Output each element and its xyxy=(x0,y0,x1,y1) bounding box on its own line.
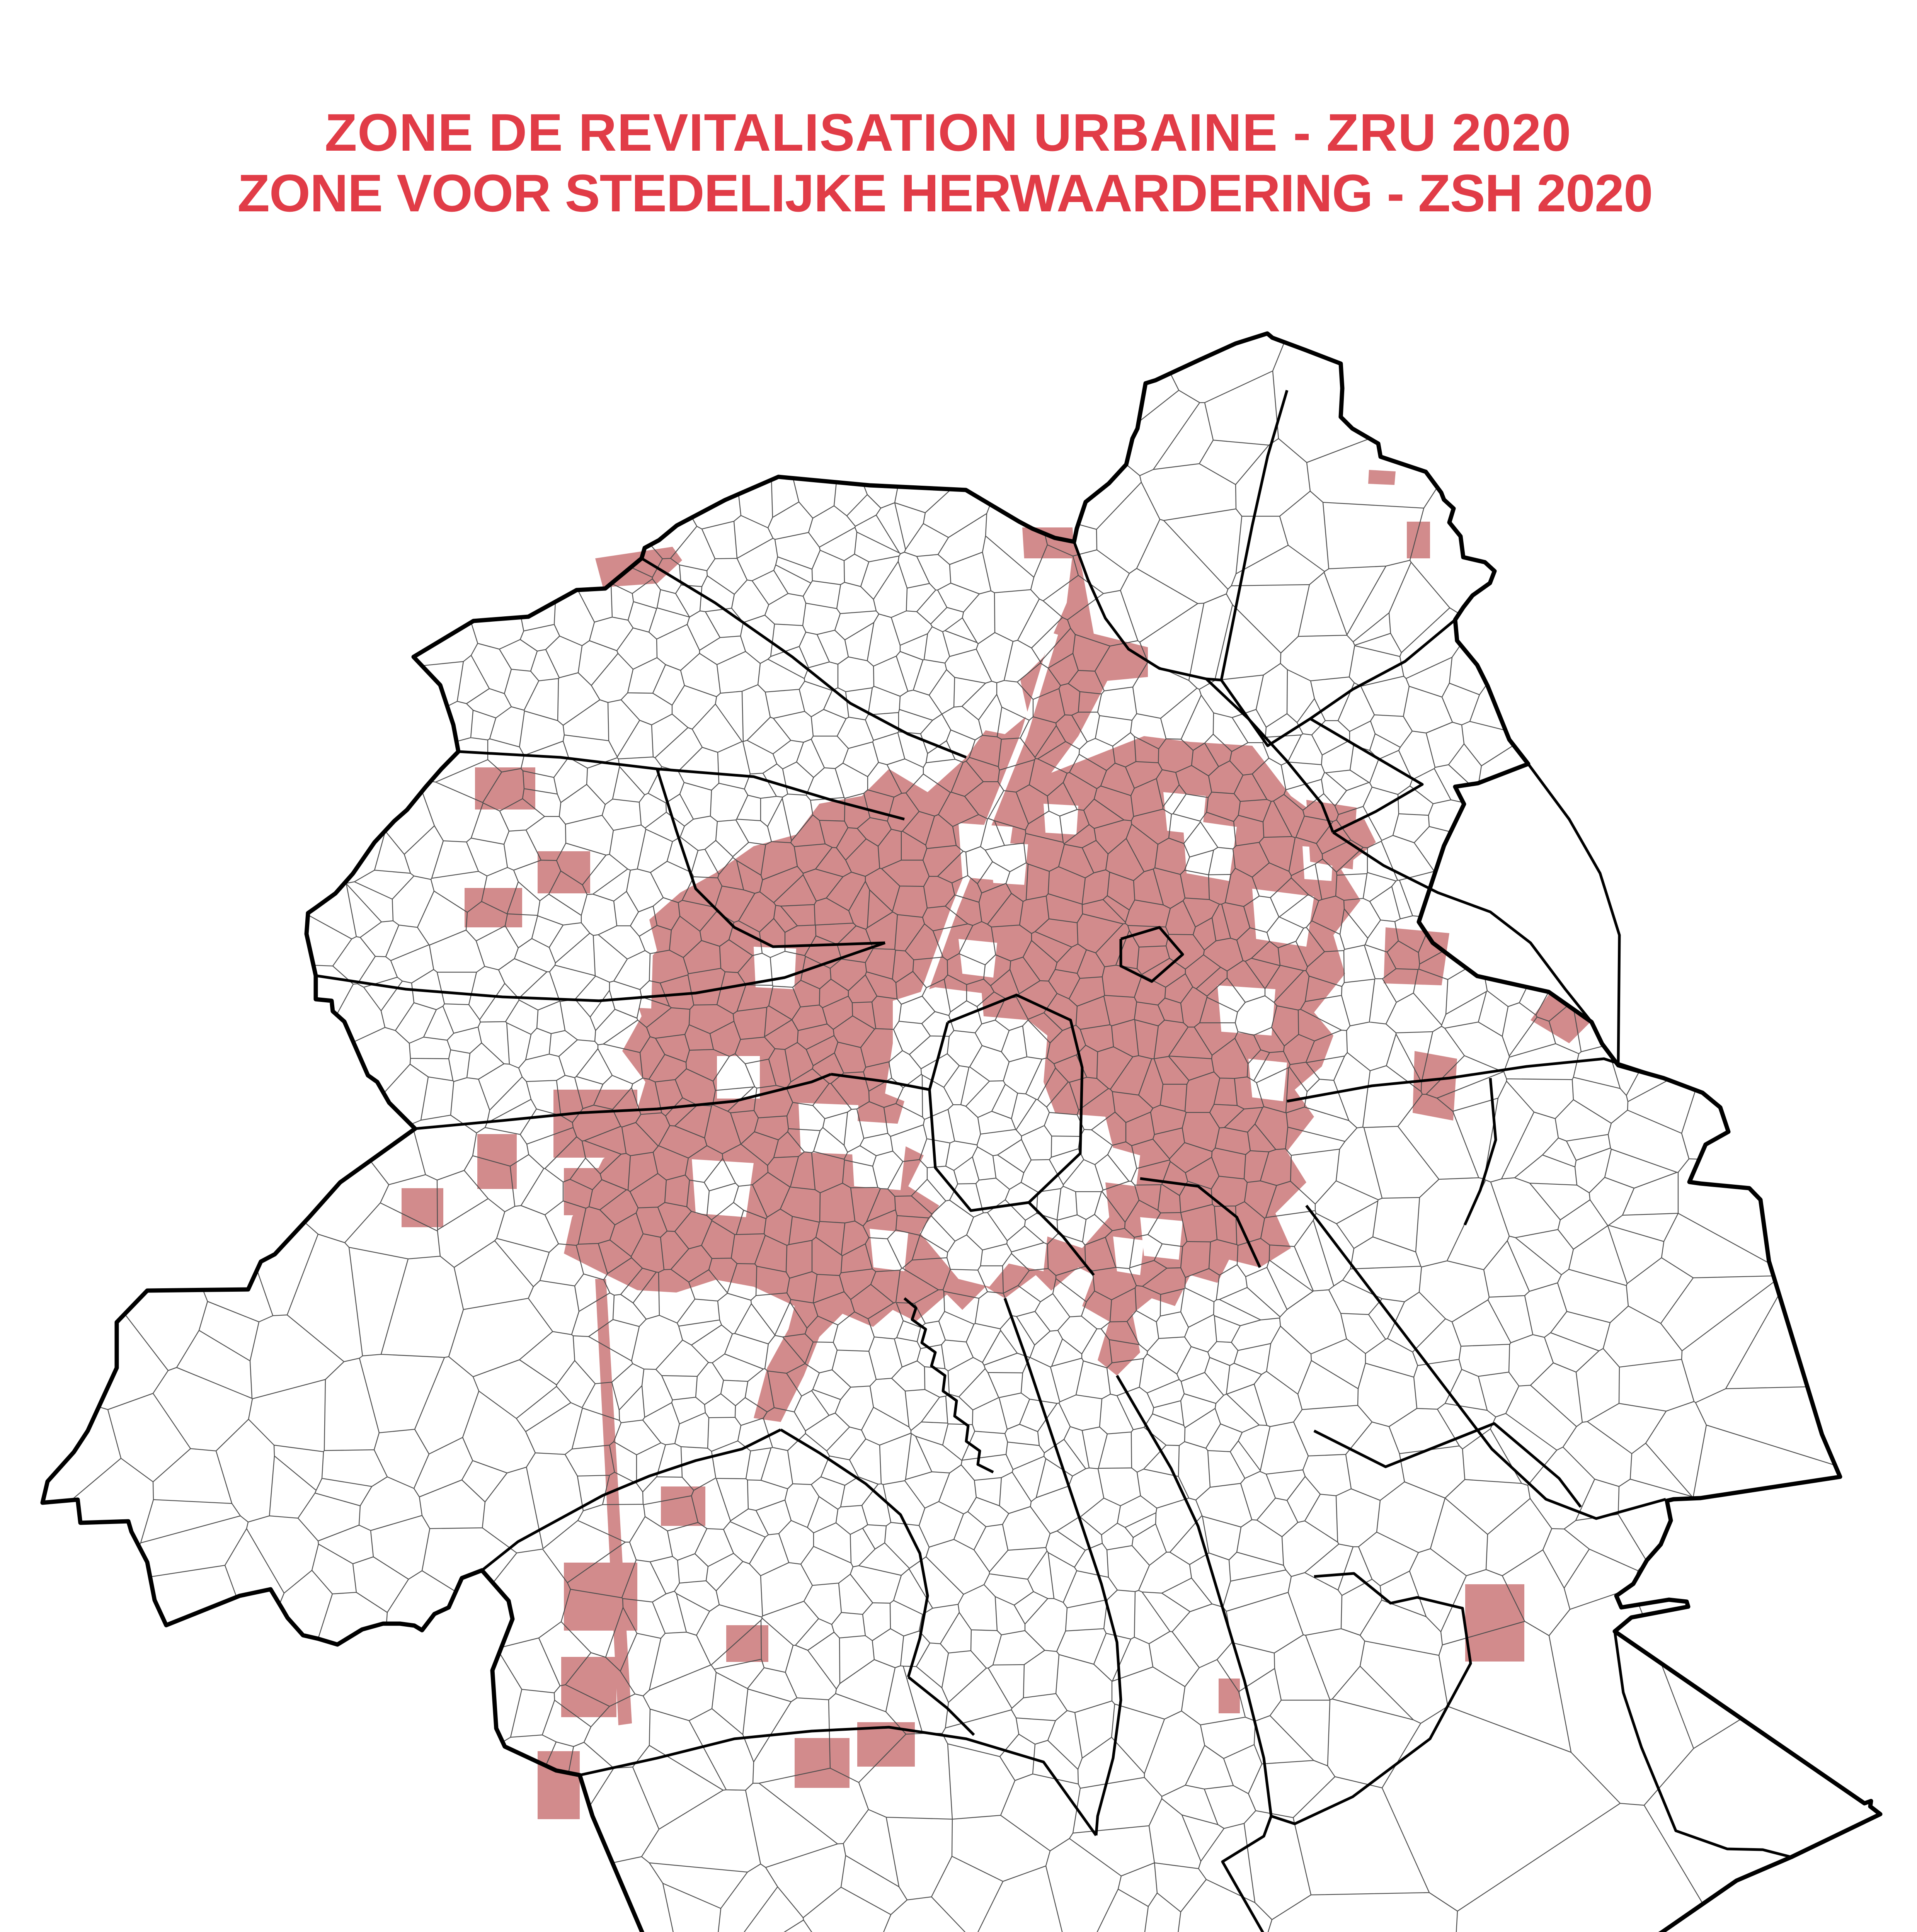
svg-text:ZONE DE REVITALISATION URBAINE: ZONE DE REVITALISATION URBAINE - ZRU 202… xyxy=(325,103,1571,162)
svg-text:ZONE VOOR STEDELIJKE HERWAARDE: ZONE VOOR STEDELIJKE HERWAARDERING - ZSH… xyxy=(237,164,1652,223)
